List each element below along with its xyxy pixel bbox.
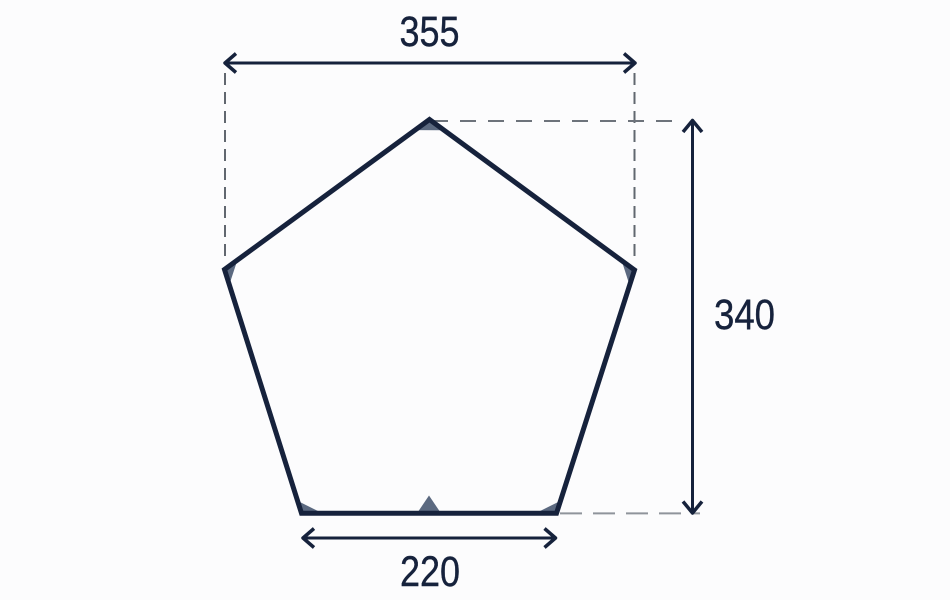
svg-text:355: 355	[400, 8, 460, 56]
svg-text:220: 220	[400, 548, 460, 596]
svg-text:340: 340	[714, 291, 775, 339]
